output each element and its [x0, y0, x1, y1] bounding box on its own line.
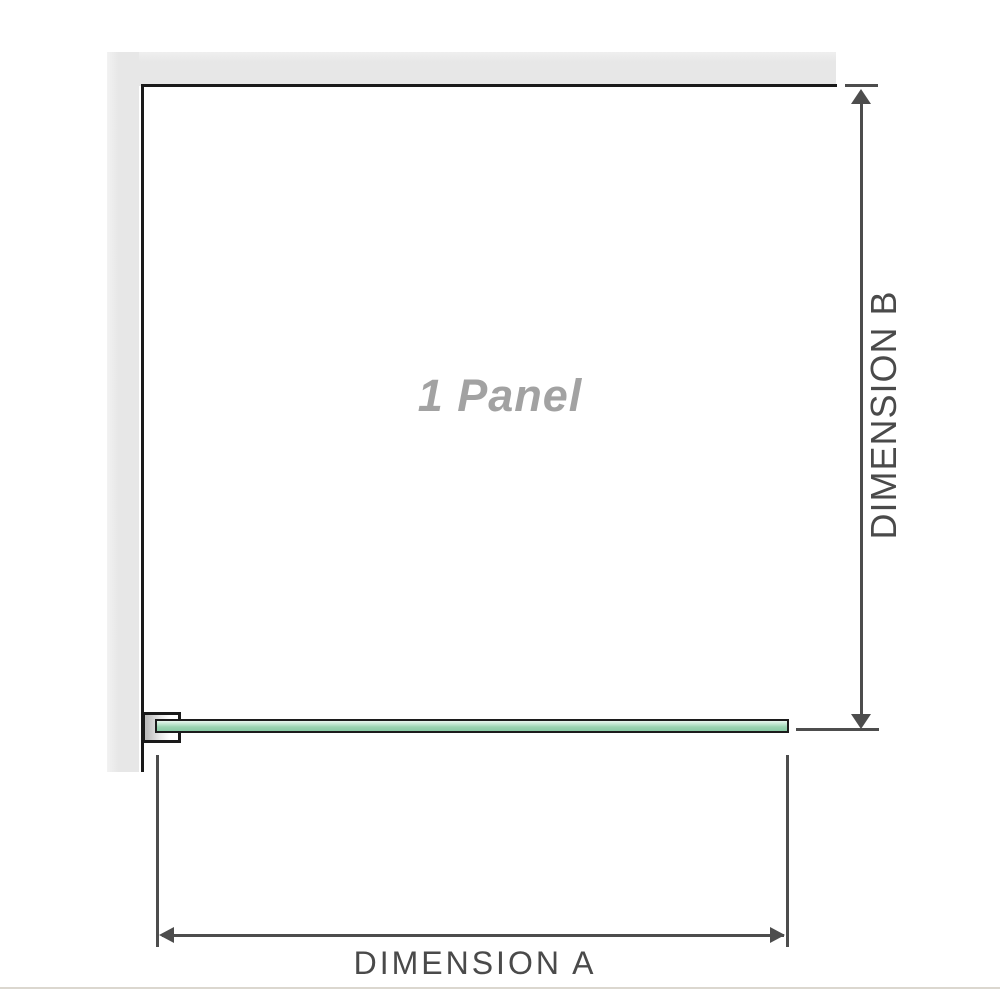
dimension-a-line: [162, 934, 784, 937]
wall-top: [107, 52, 836, 86]
arrow-up-icon: [851, 89, 871, 104]
arrow-right-icon: [770, 927, 785, 943]
diagram-canvas: 1 Panel DIMENSION B DIMENSION A: [0, 0, 1000, 1000]
dimension-a-label: DIMENSION A: [265, 946, 685, 980]
dimension-b-label: DIMENSION B: [863, 265, 905, 565]
wall-left: [107, 52, 139, 772]
extension-line-left: [156, 755, 159, 947]
page-divider: [0, 987, 1000, 989]
panel-outline-left: [141, 84, 144, 772]
glass-panel: [155, 719, 789, 733]
extension-line-right: [786, 755, 789, 947]
panel-outline-top: [141, 84, 837, 87]
arrow-left-icon: [159, 927, 174, 943]
arrow-down-icon: [851, 714, 871, 729]
panel-label: 1 Panel: [350, 372, 650, 420]
dimension-b-tick-top: [845, 84, 878, 87]
